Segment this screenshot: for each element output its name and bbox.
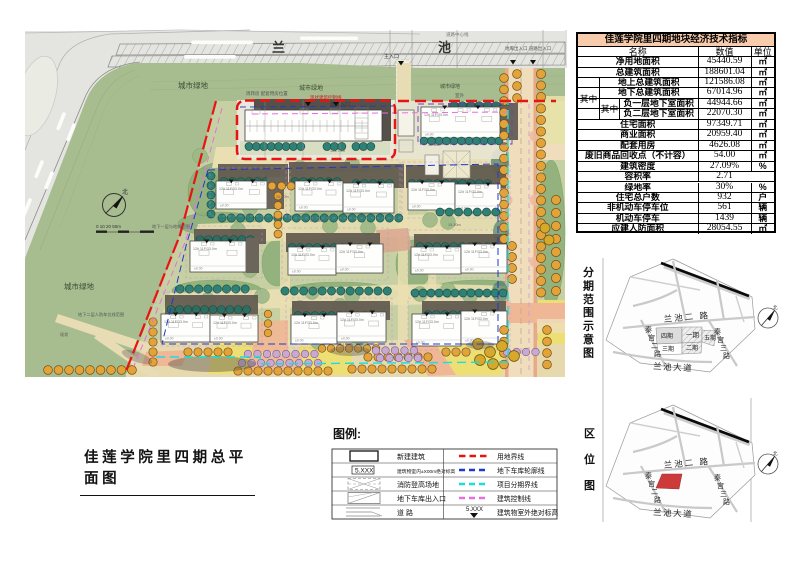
svg-text:13.05m: 13.05m: [252, 173, 265, 177]
svg-text:地下车库出入口: 地下车库出入口: [397, 494, 446, 503]
svg-text:区: 区: [584, 427, 595, 440]
svg-text:项目分期界线: 项目分期界线: [497, 480, 538, 489]
svg-text:图: 图: [583, 346, 594, 359]
svg-text:±0.00: ±0.00: [415, 269, 424, 273]
svg-text:现状: 现状: [60, 331, 69, 338]
svg-text:四期: 四期: [661, 332, 673, 340]
svg-text:图例:: 图例:: [333, 426, 361, 441]
svg-text:29.70m: 29.70m: [196, 233, 209, 237]
svg-text:北: 北: [773, 450, 778, 457]
svg-text:±0.00: ±0.00: [214, 337, 223, 341]
svg-text:消防登高场地: 消防登高场地: [397, 480, 439, 489]
svg-text:建筑物室内±X00m绝对标高: 建筑物室内±X00m绝对标高: [397, 468, 456, 475]
svg-text:期: 期: [583, 278, 594, 292]
svg-text:15.30m: 15.30m: [448, 223, 461, 227]
svg-text:路: 路: [654, 495, 661, 504]
svg-text:现状建筑控制线: 现状建筑控制线: [310, 94, 342, 101]
svg-text:64.77m: 64.77m: [340, 343, 353, 347]
svg-text:0 10 20 50m: 0 10 20 50m: [96, 224, 121, 229]
svg-text:12# 11F/33.0m: 12# 11F/33.0m: [411, 188, 435, 192]
svg-text:宫: 宫: [717, 335, 724, 344]
svg-text:范: 范: [583, 292, 594, 306]
svg-text:12# 11F/33.0m: 12# 11F/33.0m: [464, 250, 488, 254]
svg-text:±0.00: ±0.00: [292, 270, 301, 274]
svg-text:±0.00: ±0.00: [194, 267, 203, 271]
svg-text:11.30m: 11.30m: [428, 143, 440, 147]
svg-text:26.70m: 26.70m: [276, 195, 289, 199]
svg-text:5.XXX: 5.XXX: [466, 507, 483, 513]
svg-text:图: 图: [584, 479, 595, 492]
svg-text:秦: 秦: [714, 327, 721, 336]
svg-text:±0.00: ±0.00: [295, 339, 304, 343]
svg-text:池: 池: [438, 40, 451, 55]
svg-text:±0.00: ±0.00: [299, 206, 308, 210]
svg-text:65.70m: 65.70m: [310, 219, 323, 223]
svg-text:±0.00: ±0.00: [425, 133, 434, 137]
svg-text:建筑入口: 建筑入口: [330, 101, 350, 108]
svg-text:±0.00: ±0.00: [347, 208, 356, 212]
svg-text:秦: 秦: [645, 325, 652, 334]
svg-text:三期: 三期: [662, 345, 674, 353]
svg-text:12# 11F/33.0m: 12# 11F/33.0m: [193, 247, 217, 251]
svg-text:秦: 秦: [714, 473, 721, 482]
svg-text:一期: 一期: [686, 331, 700, 339]
svg-text:81.77m: 81.77m: [470, 343, 483, 347]
svg-text:示: 示: [582, 320, 594, 333]
svg-text:地下二层人防车位线范围: 地下二层人防车位线范围: [78, 311, 124, 318]
svg-text:兰: 兰: [272, 40, 285, 55]
svg-text:北: 北: [122, 188, 128, 196]
svg-text:城市绿地: 城市绿地: [64, 281, 94, 291]
svg-text:道 路: 道 路: [397, 508, 413, 517]
svg-text:宫: 宫: [648, 333, 655, 342]
svg-text:5.XXX: 5.XXX: [355, 468, 374, 475]
svg-text:秦: 秦: [645, 471, 652, 480]
svg-text:12# 11F/33.0m: 12# 11F/33.0m: [298, 187, 322, 191]
svg-text:地下车库轮廓线: 地下车库轮廓线: [497, 466, 545, 475]
svg-text:12# 11F/33.0m: 12# 11F/33.0m: [415, 320, 439, 324]
svg-text:地库出入口 道路出入口: 地库出入口 道路出入口: [505, 45, 551, 52]
svg-text:三: 三: [720, 490, 727, 498]
svg-text:±0.00: ±0.00: [412, 205, 421, 209]
svg-text:位: 位: [584, 452, 595, 466]
svg-text:主入口: 主入口: [384, 53, 399, 60]
svg-text:宫: 宫: [648, 479, 655, 488]
svg-text:地下一层与地线范围: 地下一层与地线范围: [152, 223, 190, 230]
svg-text:宫: 宫: [717, 481, 724, 490]
svg-text:12# 11F/33.0m: 12# 11F/33.0m: [346, 189, 370, 193]
svg-text:分: 分: [583, 265, 594, 279]
svg-text:建筑物室外绝对标高: 建筑物室外绝对标高: [497, 508, 558, 517]
svg-text:103.70m: 103.70m: [330, 149, 345, 153]
svg-text:±0.00: ±0.00: [340, 268, 349, 272]
svg-text:城市绿地: 城市绿地: [440, 83, 460, 90]
svg-text:±0.00: ±0.00: [165, 337, 174, 341]
svg-text:12# 11F/33.0m: 12# 11F/33.0m: [424, 113, 448, 117]
svg-text:兰池大道: 兰池大道: [653, 361, 693, 373]
svg-text:±0.00: ±0.00: [341, 337, 350, 341]
svg-text:路: 路: [723, 497, 730, 506]
svg-text:新建建筑: 新建建筑: [397, 452, 425, 461]
svg-text:围: 围: [583, 306, 594, 319]
svg-text:兰池大道: 兰池大道: [653, 507, 693, 519]
svg-text:12# 11F/33.0m: 12# 11F/33.0m: [458, 190, 482, 194]
svg-text:12# 11F/33.0m: 12# 11F/33.0m: [339, 250, 363, 254]
svg-text:路: 路: [723, 351, 730, 360]
svg-text:12# 11F/33.0m: 12# 11F/33.0m: [291, 253, 315, 257]
svg-text:12# 11F/33.0m: 12# 11F/33.0m: [219, 187, 243, 191]
svg-text:城市绿地: 城市绿地: [178, 80, 208, 90]
svg-text:12# 11F/33.0m: 12# 11F/33.0m: [414, 253, 438, 257]
svg-text:12# 11F/33.0m: 12# 11F/33.0m: [213, 321, 237, 325]
svg-text:路: 路: [654, 349, 661, 358]
svg-text:二期: 二期: [686, 344, 698, 352]
svg-text:道路中心线: 道路中心线: [446, 31, 469, 38]
svg-text:北: 北: [773, 304, 778, 311]
svg-text:12# 11F/33.0m: 12# 11F/33.0m: [294, 321, 318, 325]
svg-text:建筑控制线: 建筑控制线: [497, 494, 531, 503]
svg-text:意: 意: [583, 332, 594, 346]
svg-text:二: 二: [651, 343, 658, 350]
svg-text:城市绿地: 城市绿地: [299, 84, 323, 92]
svg-text:±0.00: ±0.00: [220, 204, 229, 208]
svg-text:室外: 室外: [455, 92, 464, 99]
svg-text:12# 11F/33.0m: 12# 11F/33.0m: [464, 317, 488, 321]
svg-text:69.70m: 69.70m: [306, 287, 319, 291]
svg-text:二: 二: [651, 489, 658, 496]
svg-text:三: 三: [720, 344, 727, 352]
svg-text:周转房 配套用房位置: 周转房 配套用房位置: [246, 90, 288, 97]
svg-text:用地界线: 用地界线: [497, 452, 524, 461]
svg-text:12# 11F/33.0m: 12# 11F/33.0m: [340, 318, 364, 322]
svg-text:±0.00: ±0.00: [465, 268, 474, 272]
